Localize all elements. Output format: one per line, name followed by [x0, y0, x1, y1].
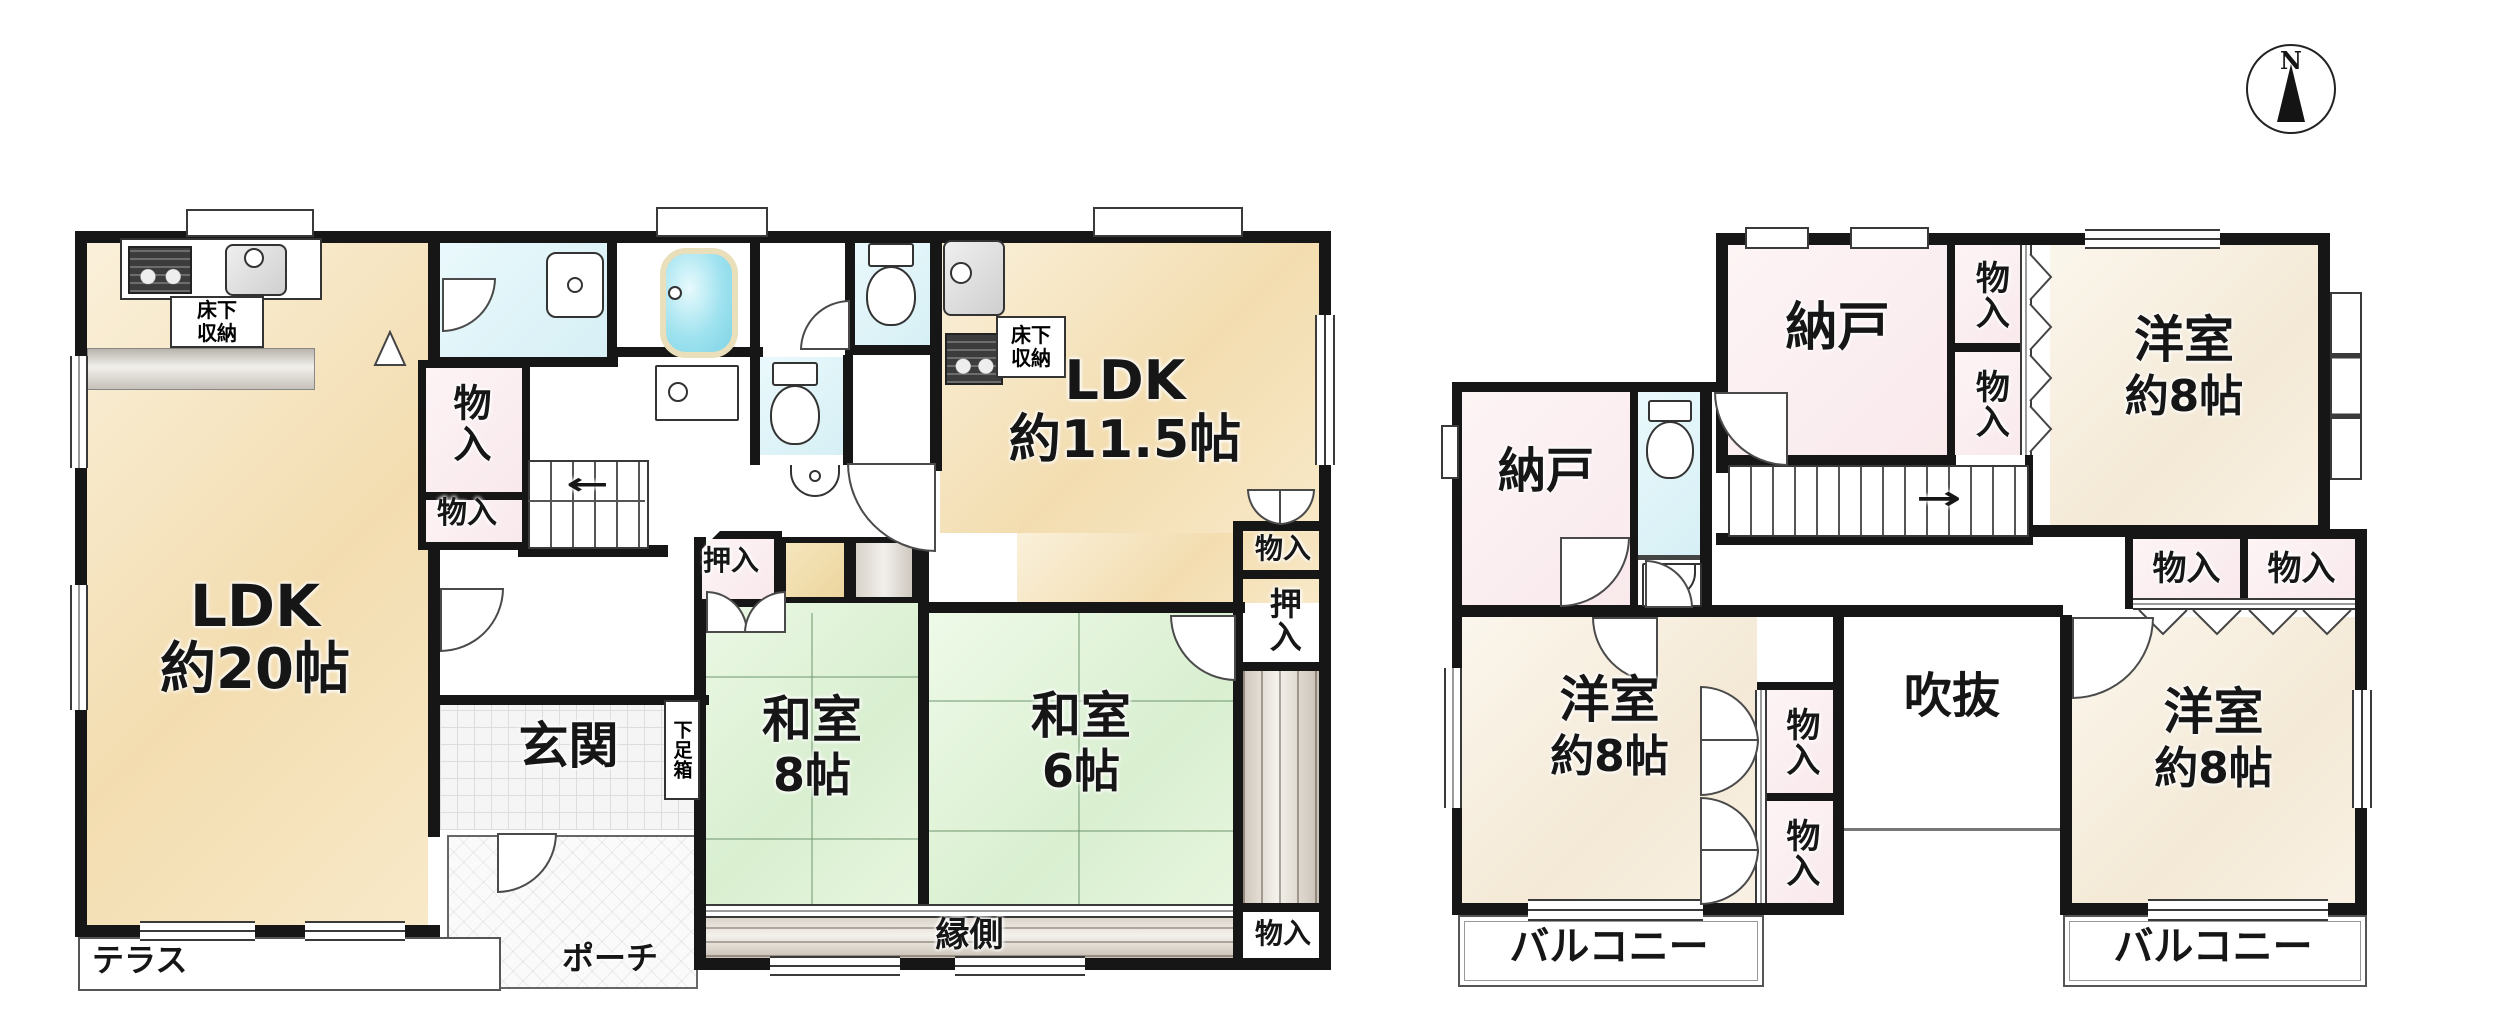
ldk-main-size: 約20帖 [115, 640, 395, 700]
wall [918, 602, 1245, 613]
wall [75, 231, 87, 937]
tatami-line [929, 830, 1233, 832]
floor-plan-canvas: ← 床下収納 床下収納 下足箱 L [0, 0, 2516, 1030]
terrace-label: テラス [92, 940, 252, 982]
wall [843, 355, 853, 465]
genkan-label: 玄関 [440, 718, 697, 774]
nando-west-label: 納戸 [1462, 442, 1630, 500]
wall [1757, 682, 1844, 690]
ldk-sub-label: LDK [980, 352, 1270, 410]
yoshitsu-se-label: 洋室 [2072, 684, 2355, 740]
stairs-arrow-icon: → [1862, 482, 2015, 516]
void-label: 吹抜 [1844, 668, 2060, 724]
window [1441, 425, 1459, 479]
window [1315, 315, 1335, 465]
nando-north-label: 納戸 [1728, 298, 1947, 358]
window [70, 356, 88, 468]
storage-east-bottom-label: 物入 [1243, 910, 1323, 958]
basin-drain [809, 470, 821, 482]
stairs-arrow-icon: ← [528, 470, 647, 500]
engawa-label: 縁側 [706, 915, 1233, 957]
wall [2240, 529, 2248, 609]
wall [1452, 382, 1462, 615]
wall [1716, 233, 1728, 473]
bathtub-icon [660, 248, 738, 358]
wall [2318, 233, 2330, 537]
ldk-sub-size: 約11.5帖 [980, 412, 1270, 468]
bay-window [2330, 292, 2362, 480]
yoshitsu-ne-size: 約8帖 [2050, 372, 2318, 422]
compass: N [2246, 44, 2336, 134]
window [1093, 207, 1243, 237]
storage-hall-small-label: 物入 [424, 496, 510, 532]
window [955, 956, 1085, 976]
storage-east-left-label: 物入 [2133, 545, 2240, 595]
window [2148, 899, 2328, 921]
door-swing-triangle-icon [372, 328, 408, 368]
yoshitsu-sw-label: 洋室 [1462, 672, 1757, 728]
toilet-icon [868, 243, 914, 267]
wall [1630, 392, 1638, 605]
wall [1452, 605, 2063, 617]
window [305, 921, 405, 941]
closet-west-label: 押入 [698, 535, 764, 587]
storage-north-lower-label: 物入 [1955, 358, 2022, 450]
tatami-line [706, 838, 918, 840]
wall [2125, 529, 2133, 609]
washitsu6-size: 6帖 [928, 746, 1234, 796]
yoshitsu-sw-size: 約8帖 [1462, 732, 1757, 782]
closet-sawtooth-icon [2135, 608, 2355, 638]
washbasin-drain [567, 277, 583, 293]
closet-east-label: 押入 [1243, 577, 1323, 663]
kitchen-counter-bar [87, 348, 315, 390]
faucet-icon [244, 248, 264, 268]
compass-needle-icon [2277, 64, 2305, 122]
wall [930, 231, 942, 471]
toilet-icon [772, 362, 818, 386]
storage-center-upper-label: 物入 [1765, 695, 1833, 789]
wall [1833, 605, 1844, 915]
window [1444, 668, 1462, 808]
wall [1452, 382, 1728, 392]
stove-icon [128, 246, 192, 294]
window [1528, 899, 1703, 921]
door-arc [440, 588, 504, 652]
wall [750, 347, 760, 465]
toilet-icon [866, 266, 916, 326]
underfloor-storage-box: 床下収納 [170, 296, 264, 348]
faucet-icon [950, 262, 972, 284]
door-arc [800, 300, 850, 350]
underfloor-storage-label: 床下収納 [194, 299, 240, 345]
storage-north-upper-label: 物入 [1955, 250, 2022, 340]
wood-closet [780, 537, 850, 603]
wall [1757, 793, 1844, 801]
void-boundary [1844, 828, 2060, 831]
wall [2060, 615, 2072, 915]
window [1745, 227, 1809, 249]
window [186, 209, 314, 237]
yoshitsu-ne-label: 洋室 [2050, 312, 2318, 368]
window [770, 956, 900, 976]
yoshitsu-se-size: 約8帖 [2072, 744, 2355, 794]
window [140, 921, 255, 941]
balcony-east-label: バルコニー [2063, 922, 2363, 972]
balcony-west-label: バルコニー [1458, 922, 1760, 972]
toilet-icon [770, 385, 820, 445]
wall [1233, 662, 1331, 671]
window [1850, 227, 1929, 249]
vanity-drain [668, 382, 688, 402]
bathtub-drain [668, 286, 682, 300]
window [656, 207, 768, 237]
window [2085, 229, 2220, 249]
washitsu6-label: 和室 [928, 688, 1234, 744]
window [2352, 690, 2372, 808]
ldk-main-label: LDK [115, 575, 395, 637]
wall [848, 345, 940, 355]
window [70, 585, 88, 710]
storage-center-lower-label: 物入 [1765, 806, 1833, 899]
tatami-line [706, 676, 918, 678]
room-wood-corridor [1243, 671, 1319, 903]
toilet-icon [1646, 421, 1694, 479]
storage-east-right-label: 物入 [2248, 545, 2355, 595]
wall [1947, 343, 2025, 352]
toilet-icon [1648, 400, 1692, 422]
storage-east-top-label: 物入 [1243, 527, 1323, 571]
porch-label: ポーチ [540, 938, 680, 980]
washitsu8-size: 8帖 [700, 750, 924, 800]
washitsu8-label: 和室 [700, 692, 924, 748]
storage-hall-tall-label: 物入 [428, 372, 508, 476]
